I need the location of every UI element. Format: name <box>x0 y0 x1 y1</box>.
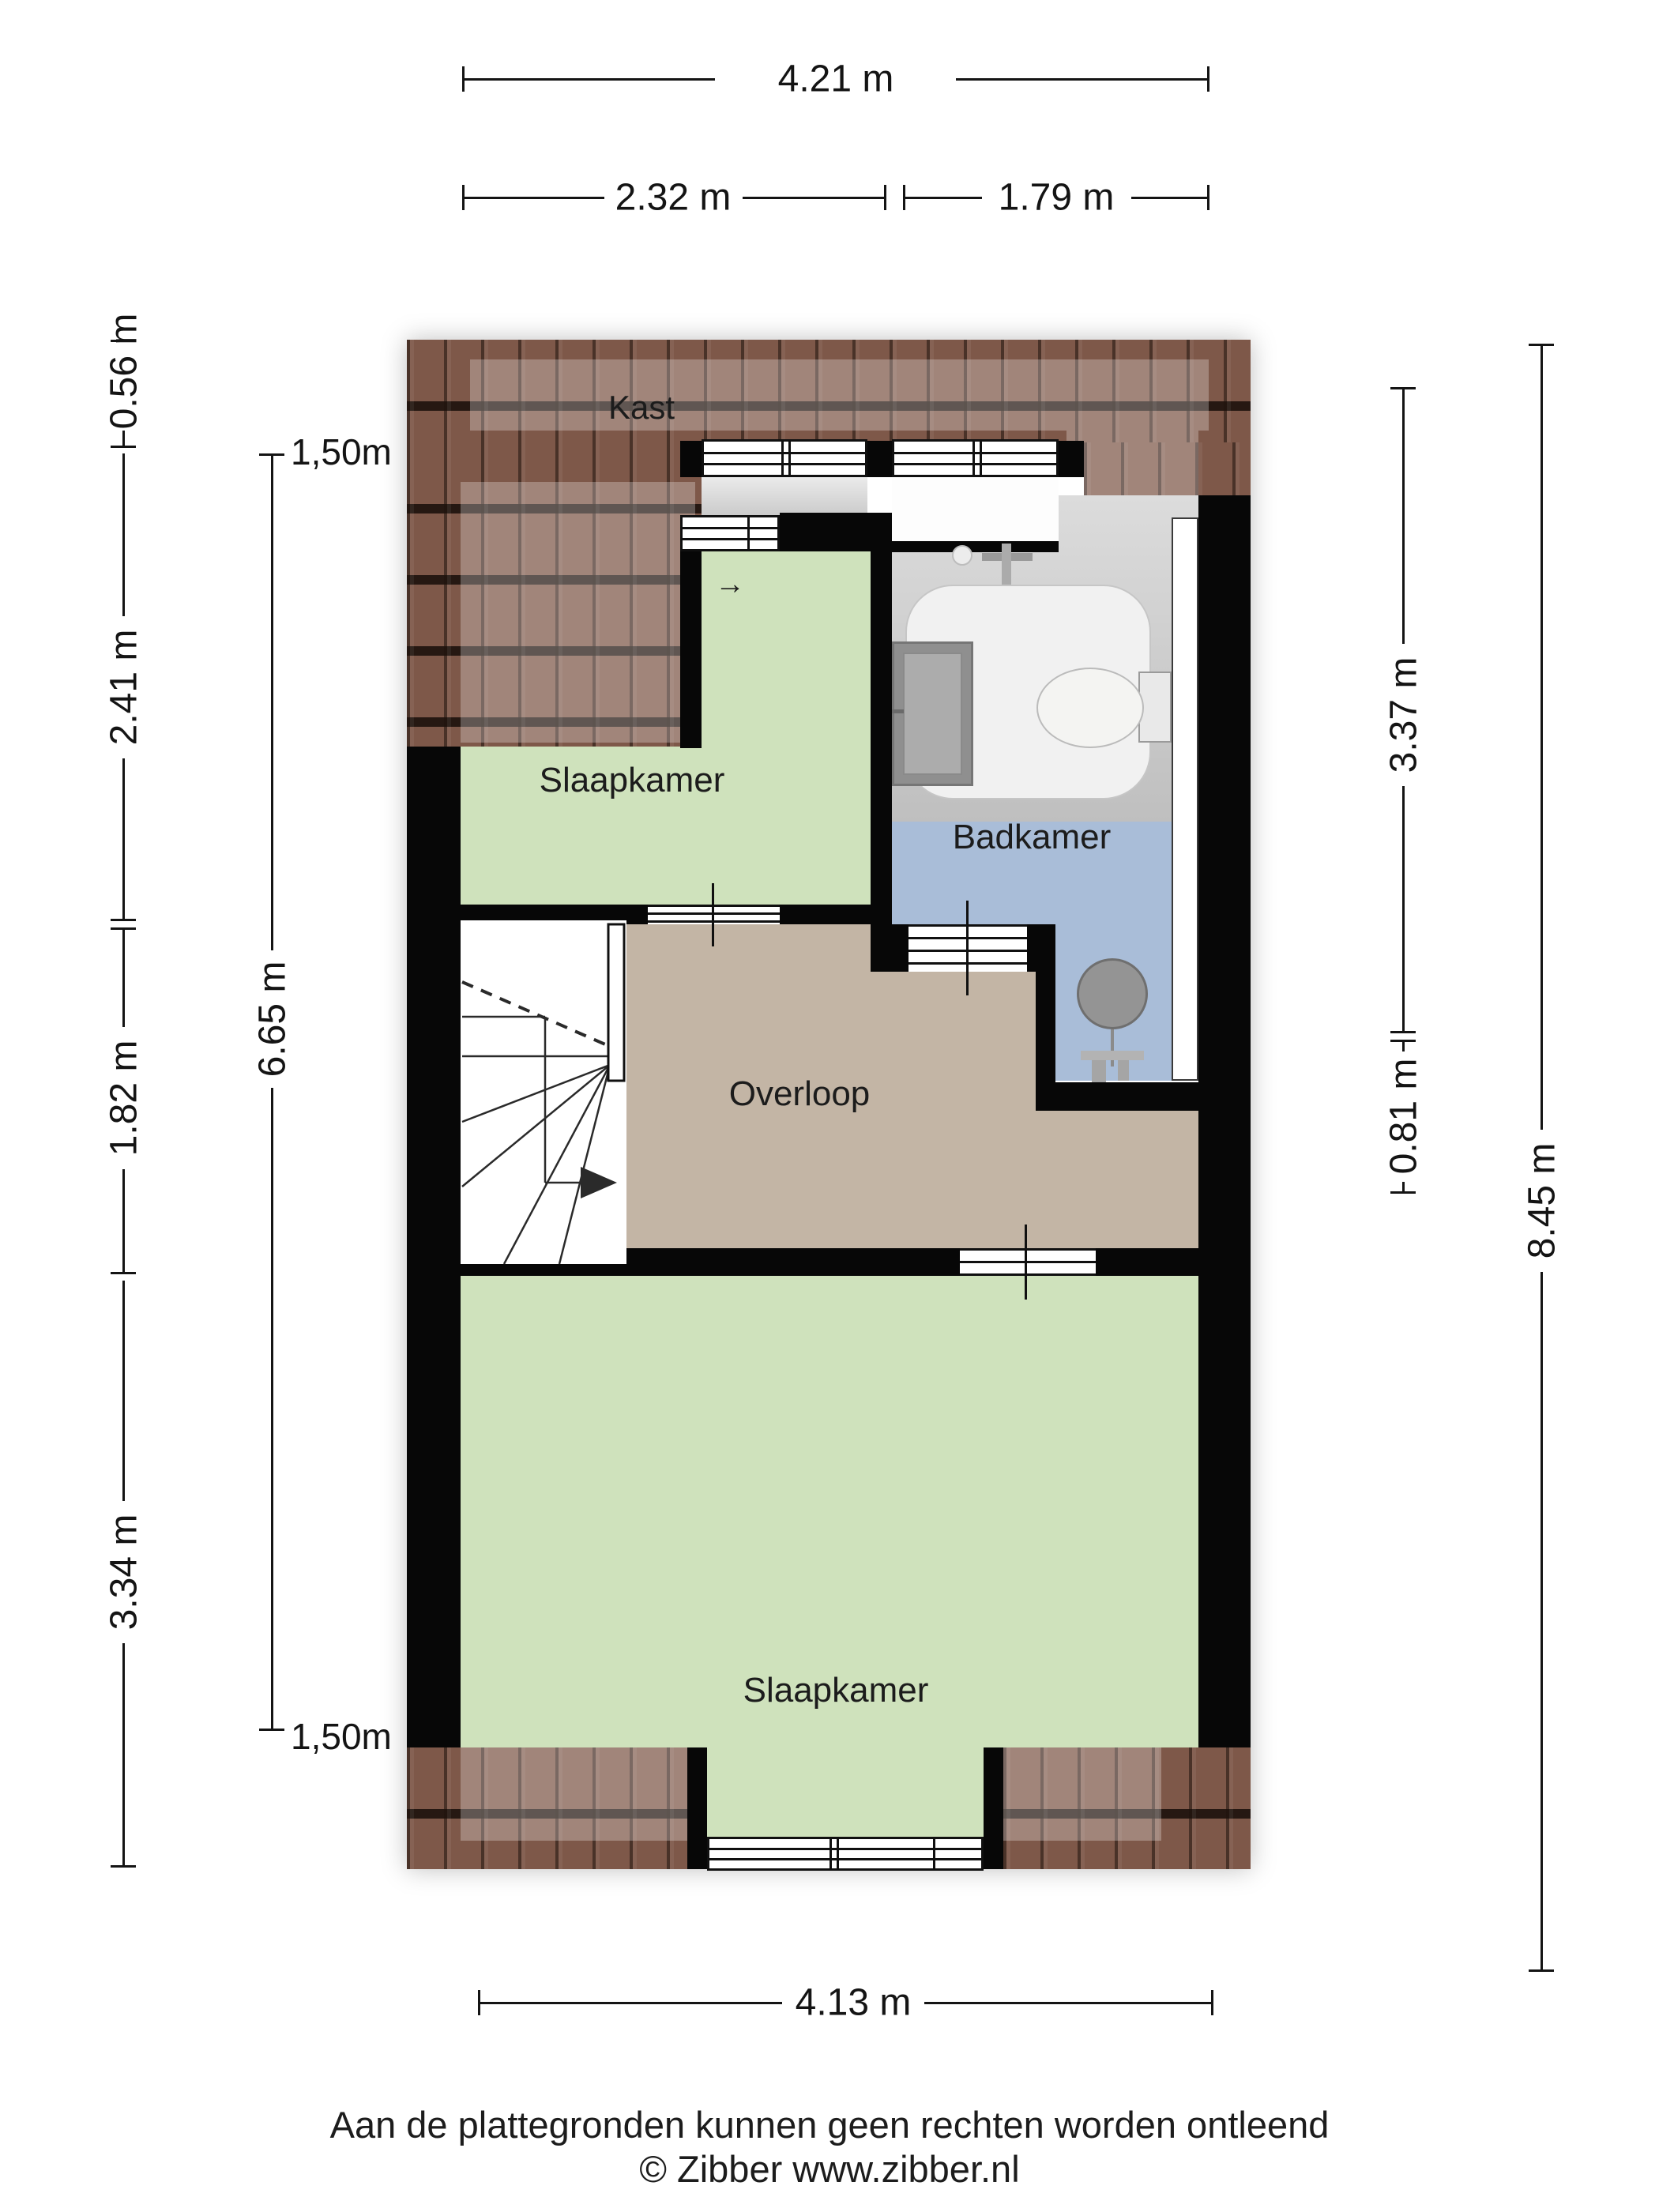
room-landing <box>1036 1111 1198 1248</box>
wall-bedroom-bathroom <box>871 549 892 924</box>
door-bedroom-bottom <box>960 1248 1096 1276</box>
window-mullion <box>837 1839 839 1868</box>
window-top-right <box>892 439 1059 477</box>
wall-right-exterior <box>1198 495 1251 1747</box>
dim-label-top-left: 2.32 m <box>615 176 732 220</box>
dim-line <box>122 1169 125 1274</box>
dim-label-right-0: 3.37 m <box>1382 657 1426 773</box>
window-top-left <box>702 439 867 477</box>
window-glass-line <box>683 527 777 529</box>
wall-top-segment <box>680 441 702 477</box>
floorplan-page: Kast Slaapkamer Badkamer Overloop Slaapk… <box>0 0 1659 2212</box>
dim-line <box>1402 786 1405 1033</box>
dim-line <box>743 197 886 199</box>
window-glass-line <box>894 452 1056 454</box>
window-glass-line <box>704 452 865 454</box>
dim-label-left-3: 3.34 m <box>103 1514 146 1631</box>
wall-bottom-strip <box>984 1747 1003 1869</box>
dim-tick <box>903 185 905 210</box>
sink-faucet <box>1092 1060 1106 1084</box>
room-bedroom-bottom-bay <box>707 1747 984 1841</box>
dim-line <box>462 78 715 81</box>
roof-low-height-overlay <box>461 482 695 743</box>
wall-top-segment <box>867 441 892 477</box>
copyright-text: © Zibber www.zibber.nl <box>0 2147 1659 2191</box>
disclaimer-text: Aan de plattegronden kunnen geen rechten… <box>0 2103 1659 2146</box>
roof-low-height-overlay <box>1066 431 1198 495</box>
dim-label-inner-length: 6.65 m <box>251 961 295 1078</box>
door-marker <box>1025 1224 1027 1300</box>
window-glass-line <box>894 463 1056 465</box>
dim-line <box>122 1281 125 1501</box>
bathtub-drain <box>952 545 972 566</box>
wall-top-segment <box>1059 441 1084 477</box>
wall-left-exterior <box>407 747 461 1747</box>
dim-tick <box>884 185 886 210</box>
dim-label-left-0: 0.56 m <box>103 314 146 430</box>
dim-line <box>1540 1272 1543 1969</box>
dim-label-right-1: 0.81 m <box>1382 1059 1426 1175</box>
dim-tick <box>1207 185 1209 210</box>
dim-tick <box>462 185 465 210</box>
dim-line <box>956 78 1209 81</box>
wall-under-window <box>892 541 1059 552</box>
door-swing-arrow-icon: → <box>715 568 745 602</box>
window-mullion <box>781 442 784 475</box>
sink-faucet <box>1118 1060 1129 1081</box>
dim-tick <box>259 1729 284 1731</box>
dim-line <box>271 1088 273 1730</box>
dim-tick <box>1390 1191 1416 1194</box>
dim-line <box>478 2002 782 2004</box>
dim-line <box>1402 389 1405 644</box>
dim-line <box>1131 197 1209 199</box>
dim-line <box>122 431 125 447</box>
sink-faucet <box>1081 1051 1144 1060</box>
wall-closet-stub <box>680 551 702 748</box>
dim-label-bottom-total: 4.13 m <box>796 1981 912 2025</box>
dim-line <box>1402 1182 1405 1191</box>
window-closet-interior <box>680 515 780 551</box>
window-mullion <box>747 517 750 549</box>
window-mullion <box>980 442 982 475</box>
window-glass-line <box>709 1848 981 1850</box>
window-mullion <box>933 1839 935 1868</box>
closet-sill <box>702 476 867 515</box>
shower-cabinet-inner <box>903 653 962 775</box>
height-marker-label-bottom: 1,50m <box>291 1715 392 1758</box>
dim-label-left-1: 2.41 m <box>103 630 146 746</box>
dim-tick <box>462 66 465 92</box>
door-marker <box>712 883 714 946</box>
dim-line <box>903 197 982 199</box>
dim-tick <box>111 1272 136 1274</box>
dim-line <box>271 456 273 950</box>
toilet-bowl <box>1036 668 1144 748</box>
knee-wall-panel <box>1172 517 1198 1081</box>
window-glass-line <box>683 538 777 540</box>
window-bottom <box>707 1837 984 1871</box>
dim-label-right-outer: 8.45 m <box>1521 1143 1564 1259</box>
stairs <box>461 920 626 1264</box>
wall-bathroom-bottom <box>1036 1082 1205 1111</box>
wall-bottom-strip <box>687 1747 707 1869</box>
window-mullion <box>829 1839 832 1868</box>
dim-tick <box>1529 1969 1554 1972</box>
dim-line <box>122 453 125 616</box>
dim-tick <box>111 1865 136 1868</box>
dim-line <box>1402 1042 1405 1051</box>
stairs-floor <box>461 920 626 1264</box>
dim-tick <box>111 919 136 921</box>
bathtub-faucet <box>1002 544 1011 585</box>
dim-label-top-right: 1.79 m <box>999 176 1115 220</box>
stairs-railing <box>608 924 624 1081</box>
window-glass-line <box>704 463 865 465</box>
dim-line <box>462 197 604 199</box>
room-label-bedroom-top: Slaapkamer <box>540 761 725 800</box>
room-label-kast: Kast <box>608 389 675 427</box>
window-mullion <box>972 442 975 475</box>
room-label-landing: Overloop <box>729 1074 871 1114</box>
dim-line <box>122 758 125 921</box>
window-recess <box>892 474 1059 544</box>
room-label-bedroom-bottom: Slaapkamer <box>743 1671 929 1710</box>
dim-tick <box>111 446 136 448</box>
sink-basin <box>1077 958 1148 1029</box>
dim-line <box>122 930 125 1027</box>
room-label-bathroom: Badkamer <box>953 818 1112 857</box>
dim-line <box>122 1643 125 1868</box>
dim-tick <box>1211 1990 1213 2015</box>
wall-closet <box>780 513 892 551</box>
door-marker <box>966 901 969 995</box>
dim-tick <box>478 1990 480 2015</box>
dim-tick <box>1390 1031 1416 1033</box>
window-mullion <box>788 442 791 475</box>
dim-label-left-2: 1.82 m <box>103 1040 146 1157</box>
height-marker-label-top: 1,50m <box>291 431 392 473</box>
dim-label-top-total: 4.21 m <box>778 58 894 101</box>
window-glass-line <box>709 1858 981 1860</box>
roof-low-height-overlay <box>470 359 1209 431</box>
dim-line <box>924 2002 1213 2004</box>
dim-line <box>1540 346 1543 1130</box>
dim-tick <box>1207 66 1209 92</box>
